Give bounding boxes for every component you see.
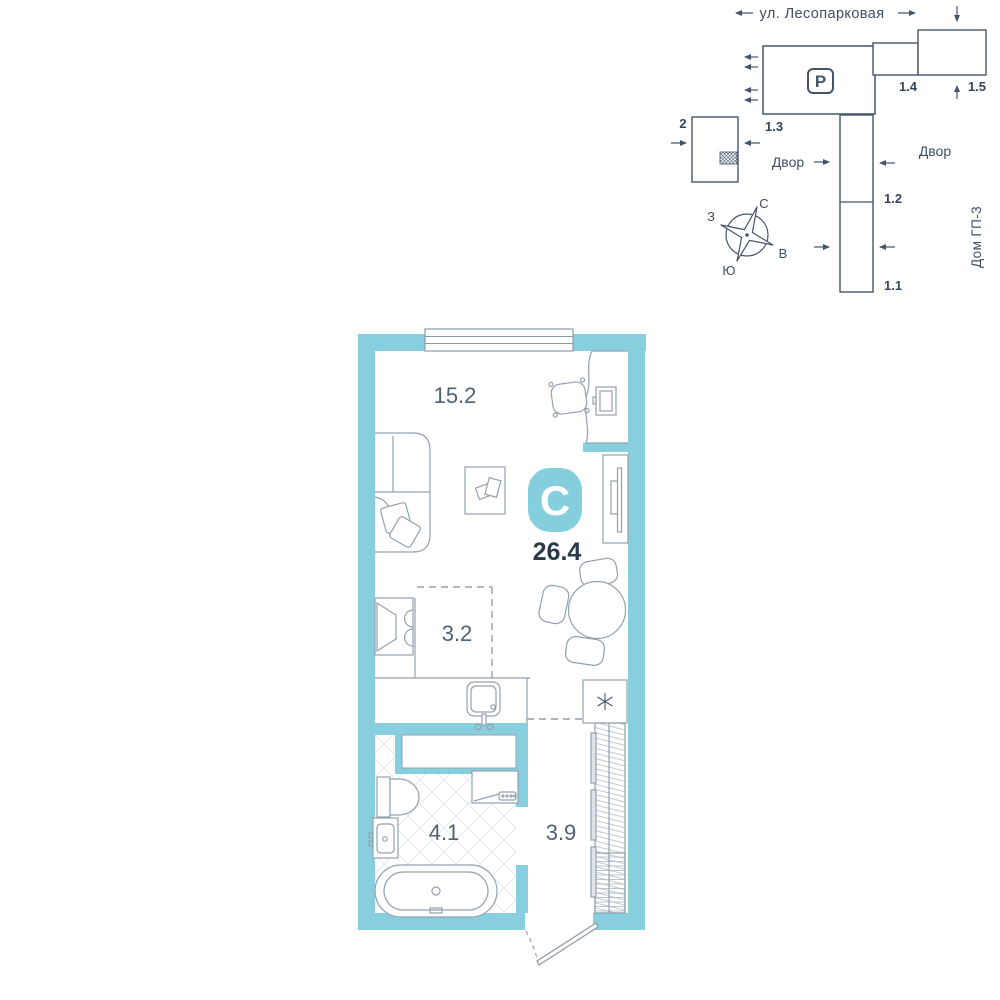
building-2-hatch — [720, 152, 737, 164]
wardrobe — [591, 723, 625, 913]
coffee-table — [465, 467, 505, 514]
kitchen-area-label: 3.2 — [442, 621, 473, 646]
studio-badge-letter: С — [540, 477, 570, 524]
building-1-5-label: 1.5 — [968, 79, 986, 94]
building-1-4: 1.4 — [873, 43, 918, 94]
kitchen-sink — [467, 682, 500, 730]
parking-entry-arrows — [745, 57, 758, 100]
compass-rose-icon: С З В Ю — [707, 196, 787, 278]
sofa — [375, 433, 430, 552]
tv-cabinet — [603, 455, 628, 543]
entry-door — [526, 923, 598, 965]
building-1-5: 1.5 — [918, 6, 986, 99]
monitor-icon — [593, 387, 616, 415]
hallway-area-label: 3.9 — [546, 820, 577, 845]
yard-right-label: Двор — [919, 143, 952, 159]
compass-south: Ю — [722, 263, 735, 278]
bathroom-sink — [369, 818, 398, 858]
total-area-label: 26.4 — [533, 538, 582, 566]
living-area-label: 15.2 — [434, 383, 477, 408]
house-gp3-label: Дом ГП-3 — [969, 206, 984, 268]
site-plan: ул. Лесопарковая P 1.3 1.4 — [655, 0, 1000, 310]
building-1-1-label: 1.1 — [884, 278, 902, 293]
studio-badge: С — [528, 468, 582, 532]
compass-east: В — [779, 246, 788, 261]
compass-west: З — [707, 209, 715, 224]
building-1-2-label: 1.2 — [884, 191, 902, 206]
floorplan-page: ул. Лесопарковая P 1.3 1.4 — [0, 0, 1000, 1000]
apartment-plan: С 26.4 15.2 3.2 4.1 3.9 — [340, 320, 660, 1000]
yard-left-label: Двор — [772, 154, 805, 170]
building-1-3-label: 1.3 — [765, 119, 783, 134]
dining-table — [537, 557, 625, 667]
bathroom-area-label: 4.1 — [429, 820, 460, 845]
bathtub — [375, 865, 497, 917]
building-2-label: 2 — [679, 116, 686, 131]
building-2: 2 — [671, 116, 760, 182]
building-1-4-label: 1.4 — [899, 79, 918, 94]
window — [425, 329, 573, 351]
desk-chair — [549, 378, 590, 418]
kitchen-stove — [375, 598, 413, 655]
building-1-2-1-1: 1.2 1.1 — [840, 115, 902, 293]
compass-north: С — [759, 196, 768, 211]
parking-letter: P — [815, 72, 826, 91]
street-label: ул. Лесопарковая — [760, 6, 885, 22]
bathroom-niche — [402, 735, 516, 768]
washing-machine — [472, 771, 518, 803]
fridge — [583, 680, 627, 723]
